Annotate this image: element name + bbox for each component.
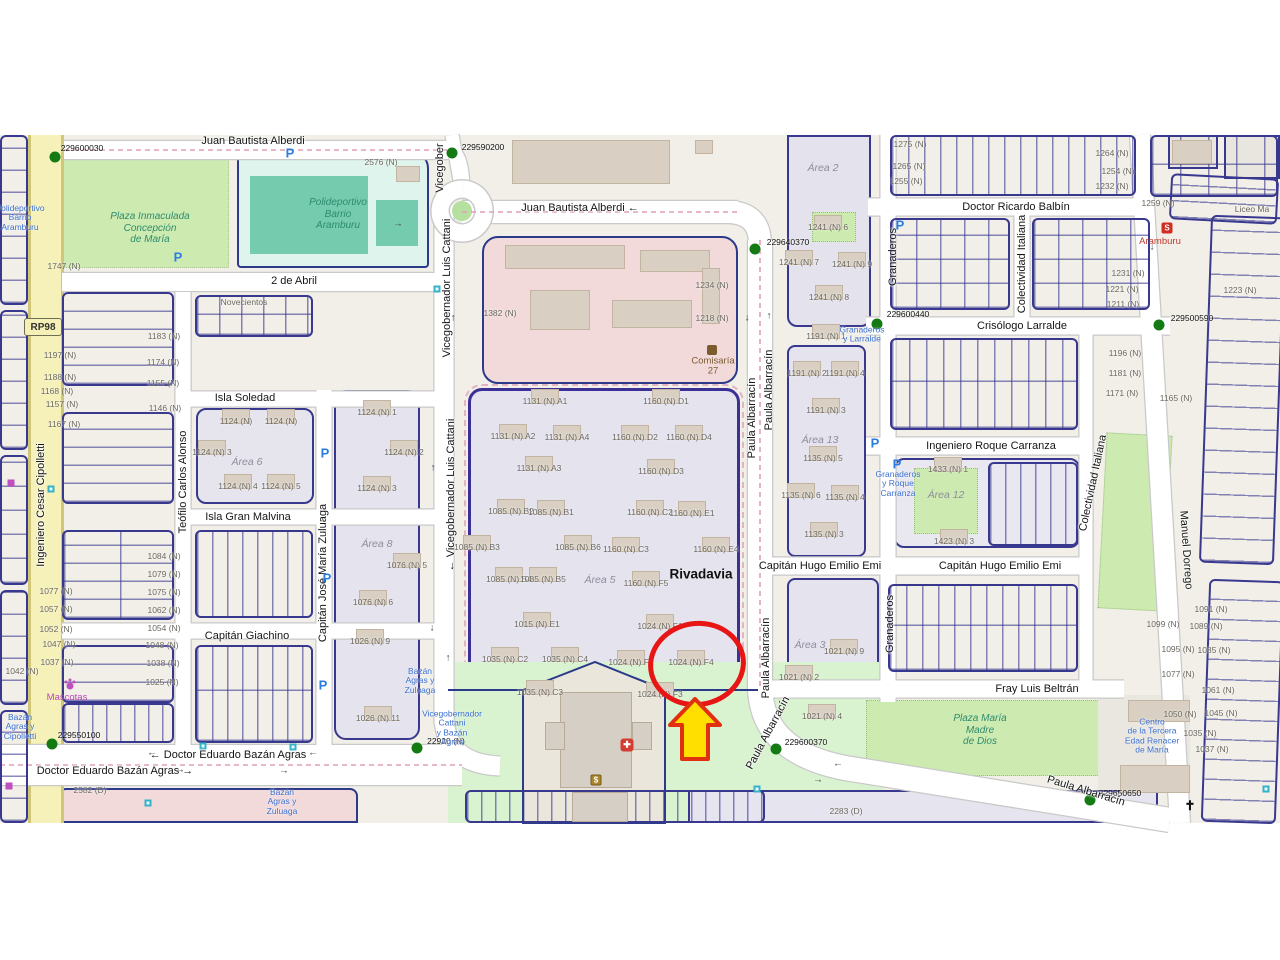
area-label: Área 2 xyxy=(808,162,839,174)
arrow-label: ↓ xyxy=(1150,242,1155,253)
minor-label: 1077 (N) xyxy=(1161,669,1194,679)
minor-label: 1264 (N) xyxy=(1095,148,1128,158)
street-label: Colectividad Italiana xyxy=(1016,215,1028,313)
minor-label: 1171 (N) xyxy=(1106,388,1138,398)
minor-label: 1015 (N) E1 xyxy=(514,619,560,629)
minor-label: 1433 (N) 1 xyxy=(928,464,968,474)
minor-label: 1191 (N) 4 xyxy=(825,368,865,378)
town-label: Rivadavia xyxy=(669,567,732,582)
minor-label: 1035 (N) xyxy=(1183,728,1216,738)
area-label: Área 5 xyxy=(585,574,616,586)
minor-label: 1196 (N) xyxy=(1109,348,1141,358)
minor-label: 1124 (N) 1 xyxy=(357,407,397,417)
minor-label: 1223 (N) xyxy=(1223,285,1256,295)
area-label: Área 12 xyxy=(928,489,965,501)
minor-label: 1254 (N) xyxy=(1101,166,1134,176)
arrow-label: ↓ xyxy=(745,313,750,324)
minor-label: 1135 (N) 3 xyxy=(804,529,844,539)
arrow-label: ↑ xyxy=(431,463,436,474)
minor-label: 1057 (N) xyxy=(39,604,72,614)
minor-label: 1037 (N) xyxy=(40,657,73,667)
minor-label: 1035 (N) C2 xyxy=(482,654,528,664)
minor-label: 1091 (N) xyxy=(1194,604,1227,614)
arrow-label: → xyxy=(813,775,823,786)
street-label: Doctor Ricardo Balbín xyxy=(962,201,1070,213)
street-label: Paula Albarracín xyxy=(763,350,775,431)
minor-label: 1079 (N) xyxy=(147,569,180,579)
bu-label: Granaderos y Roque Carranza xyxy=(876,470,921,498)
picon-label[interactable]: P xyxy=(319,678,328,693)
minor-label: 1218 (N) xyxy=(695,313,728,323)
minor-label: 1131 (N) A1 xyxy=(523,396,568,406)
poi-label: Aramburu xyxy=(1139,237,1181,247)
street-label: Manuel Dorrego xyxy=(1177,510,1194,590)
minor-label: 1076 (N) 5 xyxy=(387,560,427,570)
minor-label: 1221 (N) xyxy=(1105,284,1138,294)
poi-label: Comisaría 27 xyxy=(691,357,734,378)
minor-label: 1423 (N) 3 xyxy=(934,536,974,546)
minor-label: 1045 (N) xyxy=(1204,708,1237,718)
minor-label: 1168 (N) xyxy=(41,386,73,396)
minor-label: 1085 (N) B5 xyxy=(520,574,566,584)
street-label: Paula Albarracín xyxy=(744,695,792,772)
street-label: Ingeniero Cesar Cipolletti xyxy=(35,443,47,567)
minor-label: 1135 (N) 4 xyxy=(825,492,865,502)
minor-label: 1160 (N) D4 xyxy=(666,432,712,442)
picon-label[interactable]: P xyxy=(286,146,295,161)
minor-label: 1047 (N) xyxy=(42,639,75,649)
bu-label: Vicegobernador Cattani y Bazán Agras xyxy=(422,709,482,746)
minor-label: 1259 (N) xyxy=(1141,198,1174,208)
minor-label: 1255 (N) xyxy=(889,176,922,186)
minor-label: 1084 (N) xyxy=(147,551,180,561)
minor-label: 1265 (N) xyxy=(892,161,925,171)
minor-label: 1747 (N) xyxy=(47,261,80,271)
minor-label: 1181 (N) xyxy=(1109,368,1141,378)
arrow-label: → xyxy=(175,765,185,776)
minor-label: 1160 (N) E1 xyxy=(669,508,714,518)
street-label: Vicegober xyxy=(434,143,446,192)
arrow-label: ← xyxy=(308,748,318,759)
minor-label: 1099 (N) xyxy=(1146,619,1179,629)
minor-label: 1021 (N) 2 xyxy=(779,672,819,682)
minor-label: 1062 (N) xyxy=(147,605,180,615)
street-label: Paula Albarracín xyxy=(1046,773,1127,808)
area-label: Área 13 xyxy=(802,434,839,446)
minor-label: 1382 (N) xyxy=(483,308,516,318)
minor-label: 1275 (N) xyxy=(893,139,926,149)
minor-label: 1089 (N) xyxy=(1189,621,1222,631)
bu-label: Granaderos y Larralde xyxy=(840,326,885,345)
arrow-label: ↓ xyxy=(430,623,435,634)
arrow-label: ← xyxy=(147,748,157,759)
minor-label: 1241 (N) 9 xyxy=(832,259,872,269)
minor-label: 1085 (N) xyxy=(1197,645,1230,655)
minor-label: 1035 (N) C3 xyxy=(517,687,563,697)
minor-label: 1124 (N) 2 xyxy=(384,447,424,457)
arrow-label: ← xyxy=(833,759,843,770)
park-label: Polideportivo Barrio Aramburu xyxy=(309,197,367,232)
street-label: Isla Gran Malvina xyxy=(205,511,291,523)
minor-label: 1024 (N) F2 xyxy=(608,657,653,667)
area-label: Área 8 xyxy=(362,538,393,550)
bu-label: Bazán Agras y Zuluaga xyxy=(405,667,436,695)
minor-label: 1124 (N) 3 xyxy=(357,483,397,493)
bu-label: Bazán Agras y Cipolletti xyxy=(4,713,37,741)
street-label: 2 de Abril xyxy=(271,275,317,287)
minor-label: 1124 (N) xyxy=(220,416,252,426)
minor-label: 1052 (N) xyxy=(39,624,72,634)
label-layer: Juan Bautista AlberdiJuan Bautista Alber… xyxy=(0,0,1280,960)
minor-label: 2582 (D) xyxy=(73,785,106,795)
minor-label: 1211 (N) xyxy=(1107,299,1139,309)
minor-label: 1135 (N) 5 xyxy=(803,453,843,463)
street-label: Granaderos xyxy=(884,595,896,653)
area-label: Área 6 xyxy=(232,456,263,468)
route-shield-rp98: RP98 xyxy=(24,318,62,336)
map-screenshot: ✚$✝S 22960003022959020022964037022960044… xyxy=(0,0,1280,960)
bu-label: Bazán Agras y Zuluaga xyxy=(267,788,298,816)
minor-label: 1025 (N) xyxy=(145,677,178,687)
street-label: Fray Luis Beltrán xyxy=(995,683,1078,695)
street-label: Capitán Giachino xyxy=(205,630,289,642)
street-label: Granaderos xyxy=(887,228,899,286)
arrow-label: → xyxy=(279,766,289,777)
minor-label: 1131 (N) A4 xyxy=(545,432,590,442)
poi-label: Mascotas xyxy=(47,693,88,703)
minor-label: 1124 (N) xyxy=(265,416,297,426)
minor-label: 1174 (N) xyxy=(147,357,179,367)
street-label: Colectividad Italiana xyxy=(1077,434,1109,533)
minor-label: 1167 (N) xyxy=(48,419,80,429)
minor-label: 1131 (N) A2 xyxy=(491,431,536,441)
arrow-label: ↑ xyxy=(451,313,456,324)
street-label: ← Doctor Eduardo Bazán Agras xyxy=(150,749,307,761)
minor-label: 1157 (N) xyxy=(46,399,78,409)
minor-label: Novecientos xyxy=(221,297,268,307)
area-label: Área 3 xyxy=(795,639,826,651)
bu-label: Centro de la Tercera Edad Renacer de Mar… xyxy=(1125,717,1179,754)
minor-label: Liceo Ma xyxy=(1235,204,1270,214)
arrow-label: ↑ xyxy=(767,311,772,322)
minor-label: 1038 (N) xyxy=(146,658,179,668)
minor-label: 1021 (N) 9 xyxy=(824,646,864,656)
minor-label: 1135 (N) 6 xyxy=(781,490,821,500)
minor-label: 1197 (N) xyxy=(44,350,76,360)
minor-label: 1160 (N) C3 xyxy=(603,544,649,554)
minor-label: 1160 (N) D3 xyxy=(638,466,684,476)
minor-label: 1232 (N) xyxy=(1095,181,1128,191)
minor-label: 1241 (N) 7 xyxy=(779,257,819,267)
minor-label: 1160 (N) F5 xyxy=(624,578,669,588)
minor-label: 1061 (N) xyxy=(1201,685,1234,695)
arrow-label: ↑ xyxy=(446,653,451,664)
minor-label: 1165 (N) xyxy=(1160,393,1192,403)
street-label: Ingeniero Roque Carranza xyxy=(926,440,1056,452)
minor-label: 1234 (N) xyxy=(695,280,728,290)
picon-label[interactable]: P xyxy=(323,571,332,586)
minor-label: 1191 (N) 3 xyxy=(806,405,846,415)
arrow-label: → xyxy=(393,219,403,230)
minor-label: 1155 (N) xyxy=(147,378,179,388)
street-label: Vicegobernador Luis Cattani xyxy=(441,219,453,358)
minor-label: 1085 (N) B6 xyxy=(555,542,601,552)
street-label: Paula Albarracín xyxy=(760,618,772,699)
picon-label[interactable]: P xyxy=(321,446,330,461)
minor-label: 1021 (N) 4 xyxy=(802,711,842,721)
park-label: Plaza Inmaculada Concepción de María xyxy=(110,211,190,246)
street-label: Juan Bautista Alberdi ← xyxy=(521,202,638,214)
minor-label: 1191 (N) 2 xyxy=(787,368,827,378)
street-label: Teófilo Carlos Alonso xyxy=(177,431,189,534)
picon-label[interactable]: P xyxy=(896,218,905,233)
bu-label: Polideportivo Barrio Aramburu xyxy=(0,204,45,232)
street-label: Capitán Hugo Emilio Emi xyxy=(939,560,1061,572)
minor-label: 1160 (N) E4 xyxy=(693,544,738,554)
minor-label: 1026 (N) 11 xyxy=(356,713,400,723)
minor-label: 1075 (N) xyxy=(147,587,180,597)
minor-label: 1042 (N) xyxy=(5,666,38,676)
minor-label: 1131 (N) A3 xyxy=(517,463,562,473)
picon-label[interactable]: P xyxy=(871,436,880,451)
street-label: Isla Soledad xyxy=(215,392,276,404)
street-label: Capitán Hugo Emilio Emi xyxy=(759,560,881,572)
minor-label: 1037 (N) xyxy=(1195,744,1228,754)
minor-label: 1076 (N) 6 xyxy=(353,597,393,607)
minor-label: 1183 (N) xyxy=(148,331,180,341)
street-label: Crisólogo Larralde xyxy=(977,320,1067,332)
picon-label[interactable]: P xyxy=(893,457,902,472)
minor-label: 1095 (N) xyxy=(1161,644,1194,654)
minor-label: 1054 (N) xyxy=(147,623,180,633)
minor-label: 1026 (N) 9 xyxy=(350,636,390,646)
minor-label: 1160 (N) D2 xyxy=(612,432,658,442)
minor-label: 1241 (N) 6 xyxy=(808,222,848,232)
street-label: Doctor Eduardo Bazán Agras → xyxy=(37,765,194,777)
minor-label: 1188 (N) xyxy=(44,372,76,382)
highlight-arrow-icon xyxy=(668,697,722,761)
minor-label: 2576 (N) xyxy=(364,157,397,167)
minor-label: 1241 (N) 8 xyxy=(809,292,849,302)
minor-label: 1085 (N) B1 xyxy=(528,507,574,517)
minor-label: 1160 (N) C2 xyxy=(627,507,673,517)
picon-label[interactable]: P xyxy=(174,250,183,265)
minor-label: 1085 (N) B3 xyxy=(454,542,500,552)
minor-label: 1124 (N) 4 xyxy=(218,481,258,491)
minor-label: 1085 (N) B2 xyxy=(488,506,534,516)
street-label: Paula Albarracín xyxy=(746,378,758,459)
minor-label: 1231 (N) xyxy=(1111,268,1144,278)
minor-label: 1160 (N) D1 xyxy=(643,396,689,406)
minor-label: 1124 (N) 3 xyxy=(192,447,232,457)
park-label: Plaza María Madre de Dios xyxy=(953,713,1006,748)
minor-label: 2283 (D) xyxy=(829,806,862,816)
minor-label: 1146 (N) xyxy=(149,403,181,413)
minor-label: 1048 (N) xyxy=(145,640,178,650)
minor-label: 1124 (N) 5 xyxy=(261,481,301,491)
minor-label: 1077 (N) xyxy=(39,586,72,596)
minor-label: 1035 (N) C4 xyxy=(542,654,588,664)
